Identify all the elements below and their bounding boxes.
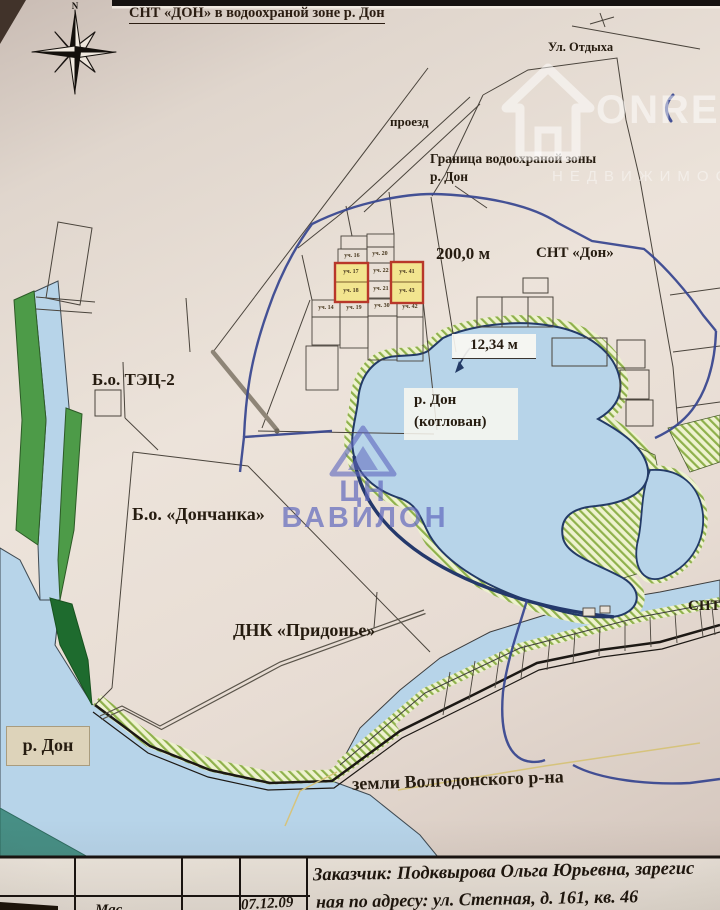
plot-label-42: уч. 42 [395, 304, 425, 310]
boundary-label-line2: р. Дон [430, 169, 468, 185]
dnk-pridonye-label: ДНК «Придонье» [233, 620, 375, 641]
river-don-label: р. Дон [7, 727, 89, 763]
map-title: СНТ «ДОН» в водоохраной зоне р. Дон [129, 5, 385, 24]
plot-label-30: уч. 30 [367, 303, 397, 309]
plot-label-16: уч. 16 [337, 253, 367, 259]
lake-right-lobe [636, 470, 703, 579]
footer-date: 07.12.09 [241, 895, 294, 910]
plot-label-19: уч. 19 [339, 305, 369, 311]
scanned-map-page: N СНТ «ДОН» в водоохраной зоне р. Дон Ул… [0, 0, 720, 910]
boundary-label-line1: Граница водоохраной зоны [430, 151, 596, 167]
plot-label-41: уч. 41 [392, 269, 422, 275]
base-tec-label: Б.о. ТЭЦ-2 [92, 370, 175, 390]
base-donchanka-label: Б.о. «Дончанка» [132, 504, 265, 525]
compass-north-letter: N [72, 1, 79, 11]
street-label: Ул. Отдыха [548, 40, 613, 55]
plot-label-17: уч. 17 [336, 269, 366, 275]
photo-corner-shadow [0, 0, 26, 44]
heavy-gray-line [213, 352, 280, 434]
plot-label-43: уч. 43 [392, 288, 422, 294]
depth-label-box: 12,34 м [452, 334, 536, 359]
river-don-label-box: р. Дон [6, 726, 90, 766]
pond-label-box: р. Дон (котлован) [404, 388, 518, 440]
footer-scale-fragment: Мас [95, 902, 122, 910]
plot-label-14: уч. 14 [311, 305, 341, 311]
distance-label: 200,0 м [436, 244, 490, 264]
depth-label: 12,34 м [452, 334, 536, 356]
snt-don-label: СНТ «Дон» [536, 245, 614, 262]
pond-label-line1: р. Дон [414, 388, 518, 412]
passage-label: проезд [390, 114, 429, 130]
lake-kotlovan [352, 323, 720, 617]
compass-rose: N [32, 1, 116, 94]
snt-right-edge-label: СНТ [688, 598, 720, 615]
pond-label-line2: (котлован) [414, 412, 518, 432]
plot-label-20: уч. 20 [365, 251, 395, 257]
plot-label-18: уч. 18 [336, 288, 366, 294]
